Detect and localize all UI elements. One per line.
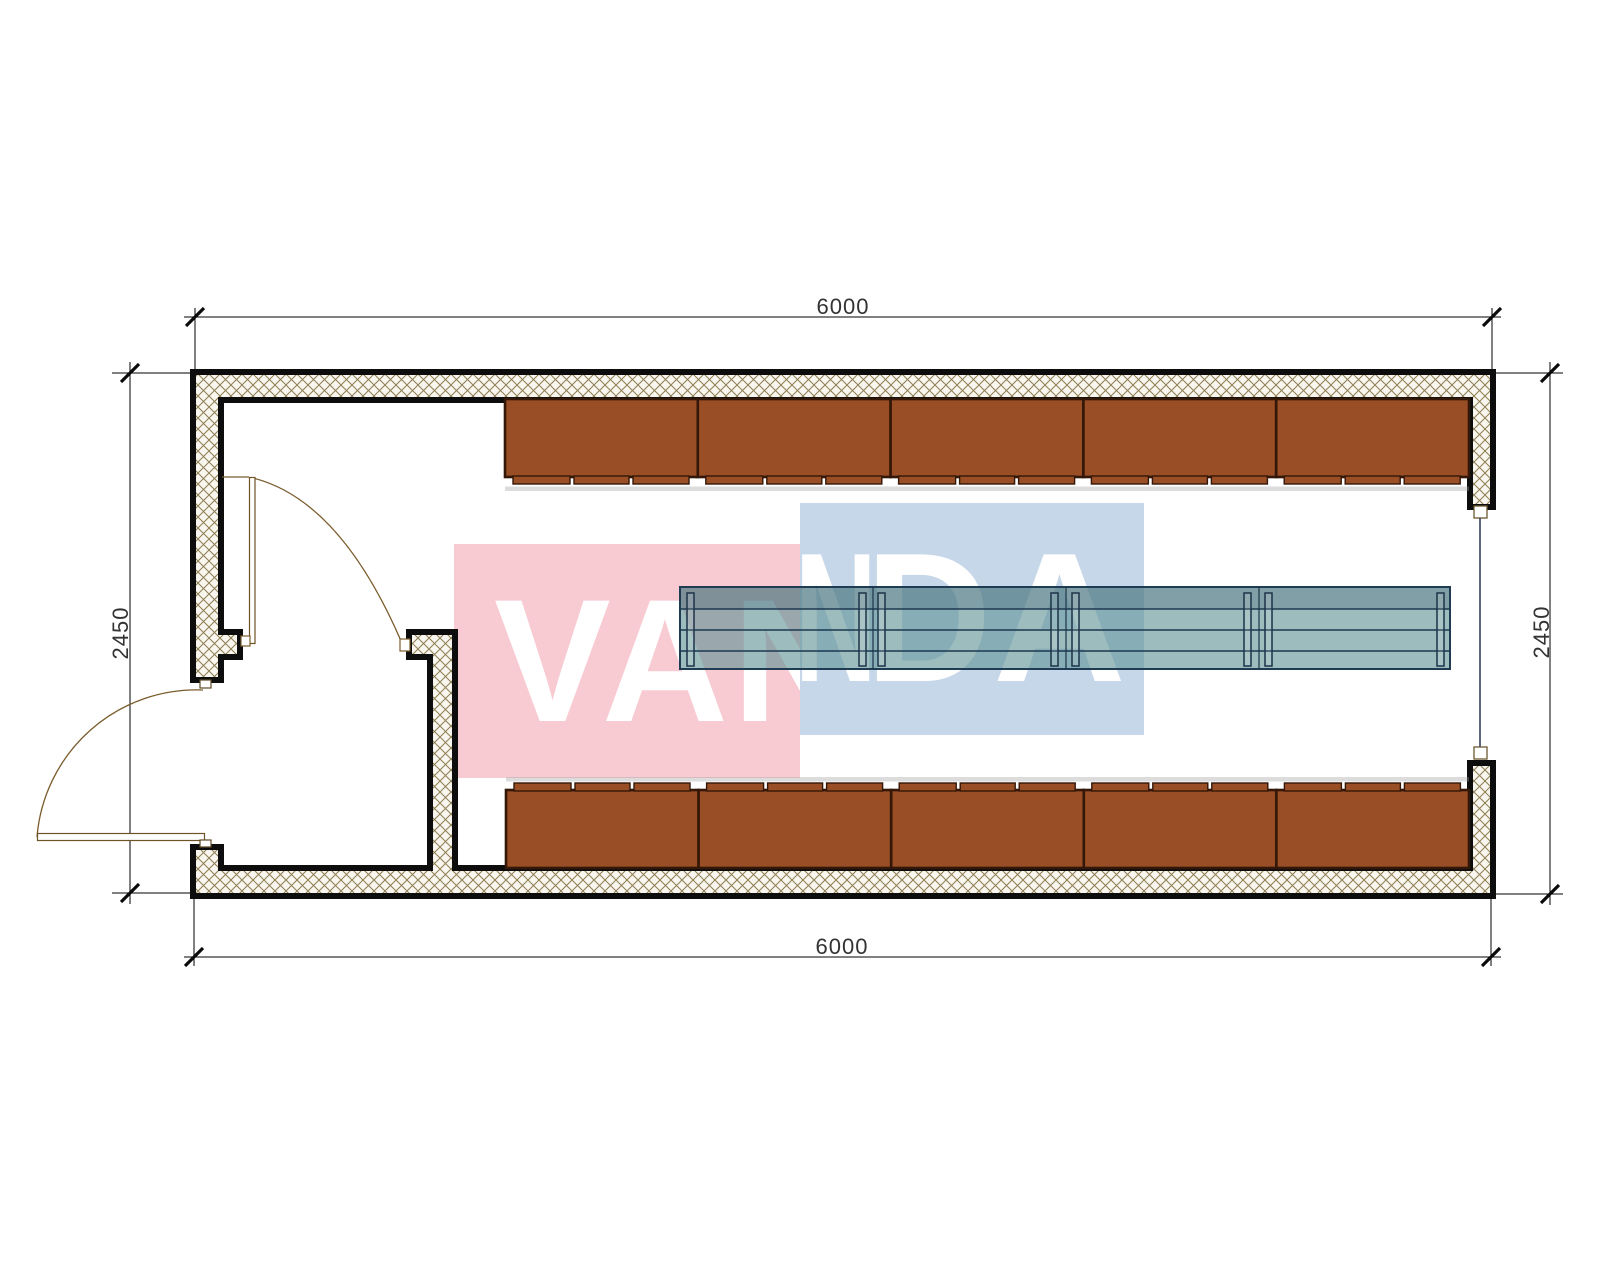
svg-text:2450: 2450 <box>108 607 133 660</box>
svg-text:6000: 6000 <box>817 294 870 319</box>
svg-text:6000: 6000 <box>816 934 869 959</box>
svg-text:2450: 2450 <box>1529 606 1554 659</box>
